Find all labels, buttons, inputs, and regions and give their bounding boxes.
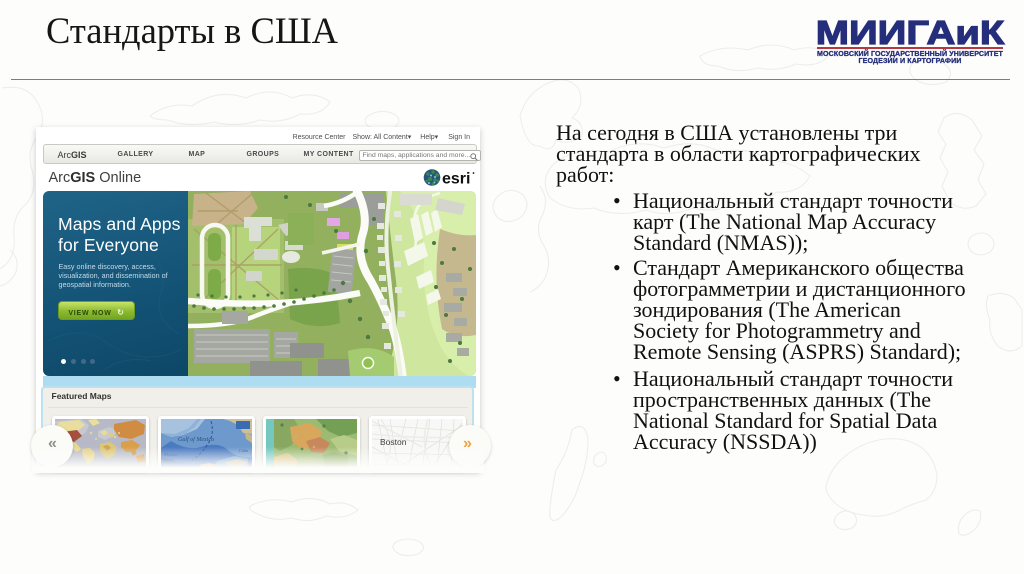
- svg-text:Boston: Boston: [380, 437, 407, 447]
- svg-text:Gulf of Mexico: Gulf of Mexico: [178, 436, 214, 443]
- svg-text:esri: esri: [442, 171, 470, 188]
